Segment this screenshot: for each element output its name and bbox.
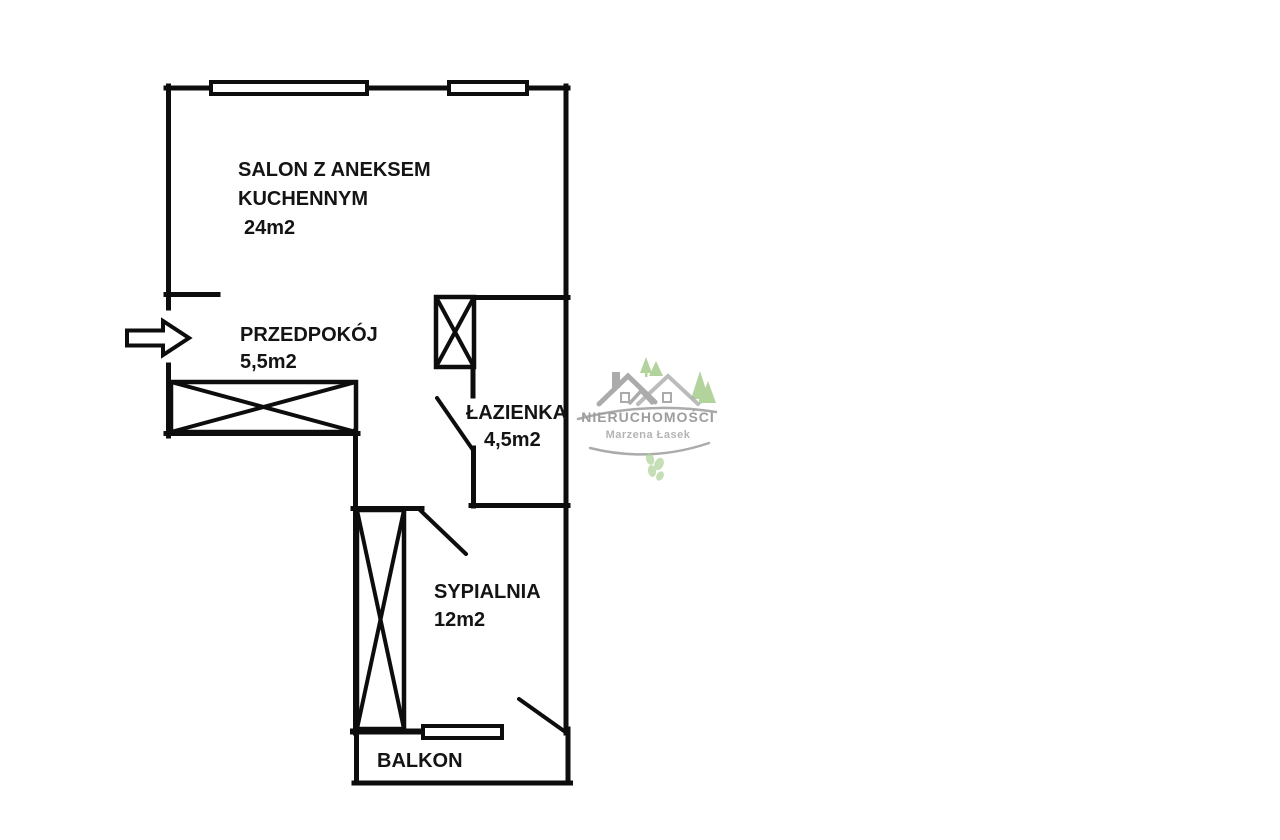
room-label-przedpokoj: PRZEDPOKÓJ bbox=[240, 323, 378, 347]
agency-owner-name: Marzena Łasek bbox=[558, 429, 738, 441]
wardrobe-icon bbox=[357, 510, 404, 729]
leaf-sprig-icon bbox=[644, 452, 666, 482]
entrance-arrow-icon bbox=[127, 321, 189, 355]
crossed-boxes bbox=[171, 297, 474, 729]
wardrobe-icon bbox=[171, 382, 356, 432]
room-label-sypialnia: SYPIALNIA bbox=[434, 580, 541, 604]
agency-name: NIERUCHOMOŚCI bbox=[558, 409, 738, 425]
room-area-sypialnia: 12m2 bbox=[434, 608, 485, 632]
ventilation-shaft-icon bbox=[436, 297, 474, 367]
door-swing-icon-balcony bbox=[519, 699, 564, 731]
floor-plan: SALON Z ANEKSEM KUCHENNYM 24m2 PRZEDPOKÓ… bbox=[0, 0, 1280, 840]
room-label-salon-line1: SALON Z ANEKSEM bbox=[238, 158, 431, 182]
window-icon bbox=[211, 82, 367, 94]
room-area-salon: 24m2 bbox=[244, 216, 295, 240]
room-label-lazienka: ŁAZIENKA bbox=[466, 401, 567, 425]
room-area-przedpokoj: 5,5m2 bbox=[240, 350, 297, 374]
room-label-salon-line2: KUCHENNYM bbox=[238, 187, 368, 211]
room-label-balkon: BALKON bbox=[377, 749, 463, 773]
door-swing-icon-bedroom bbox=[420, 510, 466, 554]
room-area-lazienka: 4,5m2 bbox=[484, 428, 541, 452]
house-chimney bbox=[612, 372, 620, 388]
window-icon bbox=[449, 82, 527, 94]
window-icon bbox=[423, 726, 502, 738]
